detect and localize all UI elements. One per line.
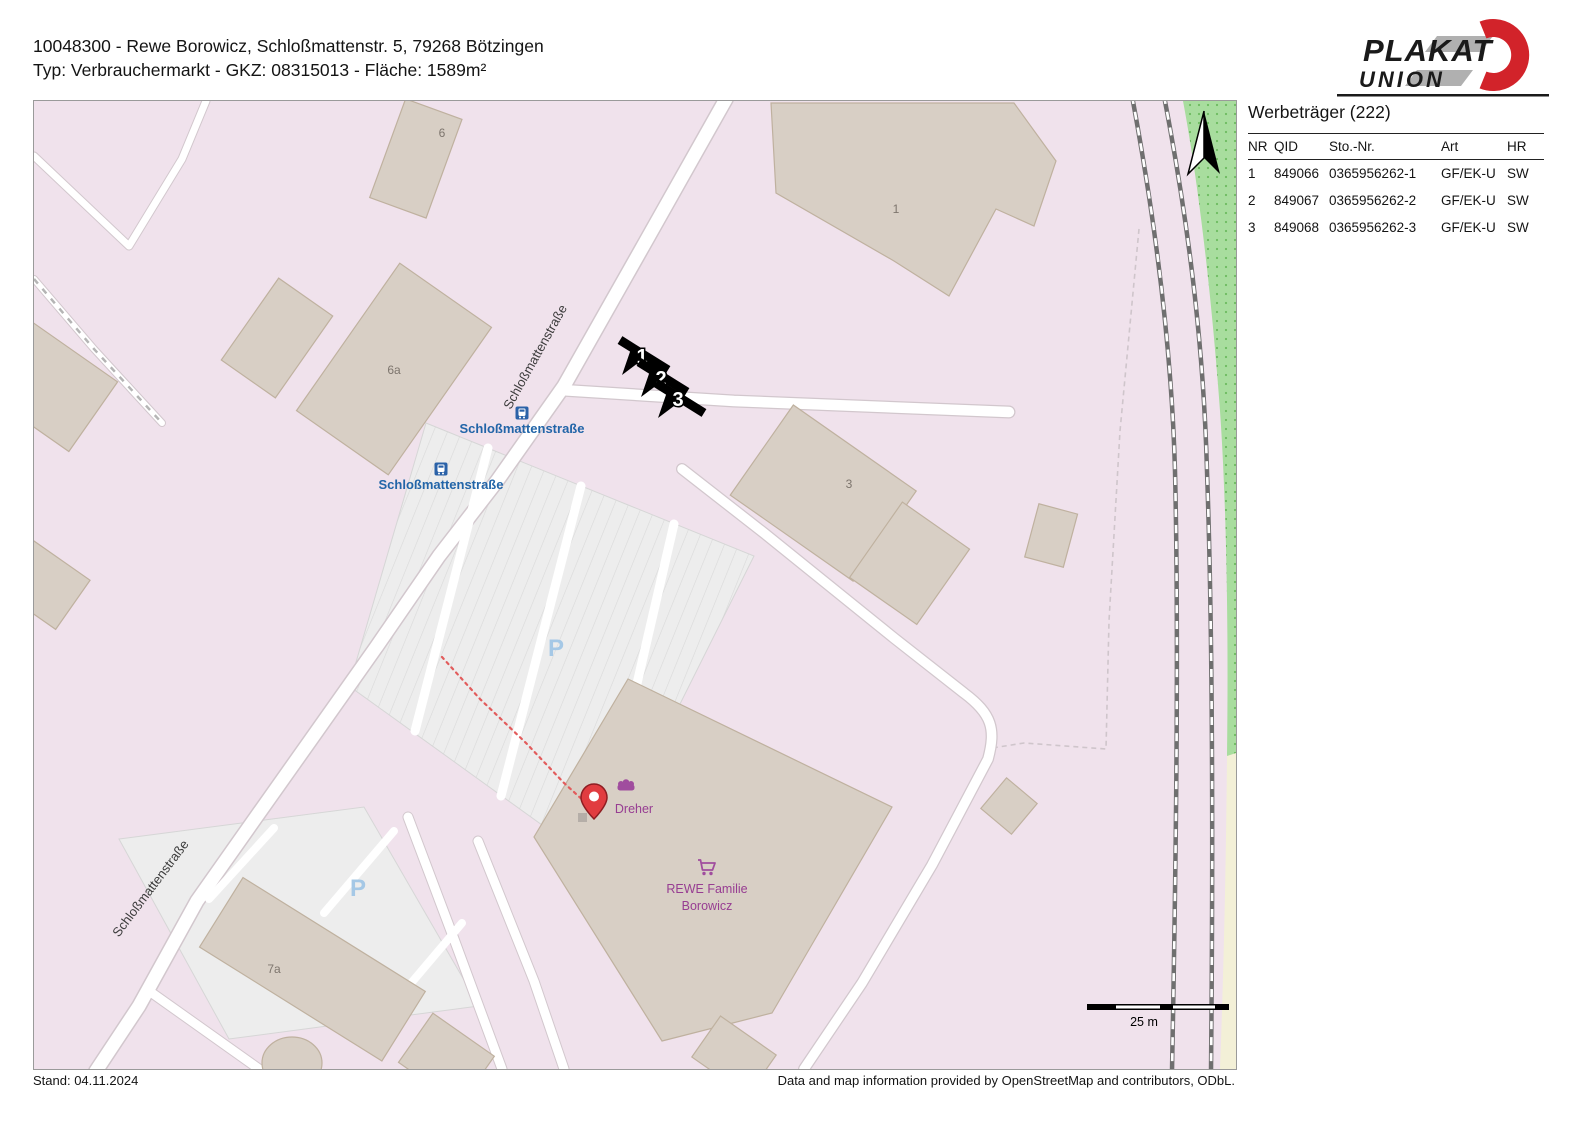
cell-art: GF/EK-U bbox=[1441, 220, 1507, 235]
cell-hr: SW bbox=[1507, 220, 1542, 235]
table-row: 2 849067 0365956262-2 GF/EK-U SW bbox=[1248, 187, 1544, 214]
werbetraeger-panel: Werbeträger (222) NR QID Sto.-Nr. Art HR… bbox=[1248, 102, 1544, 241]
parking-label-main: P bbox=[548, 635, 564, 662]
attribution-text: Data and map information provided by Ope… bbox=[778, 1073, 1235, 1088]
bus-window bbox=[520, 410, 525, 412]
table-row: 1 849066 0365956262-1 GF/EK-U SW bbox=[1248, 160, 1544, 187]
cell-art: GF/EK-U bbox=[1441, 193, 1507, 208]
cell-qid: 849068 bbox=[1274, 220, 1329, 235]
stand-date: Stand: 04.11.2024 bbox=[33, 1073, 138, 1088]
building-6-label: 6 bbox=[439, 126, 446, 140]
page: { "page": { "title_line1": "10048300 - R… bbox=[0, 0, 1587, 1123]
building-1-label: 1 bbox=[893, 202, 900, 216]
cell-hr: SW bbox=[1507, 193, 1542, 208]
cell-sto: 0365956262-1 bbox=[1329, 166, 1441, 181]
cell-nr: 1 bbox=[1248, 166, 1274, 181]
col-sto: Sto.-Nr. bbox=[1329, 139, 1441, 154]
col-art: Art bbox=[1441, 139, 1507, 154]
table-header: NR QID Sto.-Nr. Art HR bbox=[1248, 133, 1544, 160]
map-canvas: 6 1 6a 3 7a Schloßmattenstraße Schloßmat… bbox=[33, 100, 1237, 1070]
bus-stop-1 bbox=[516, 407, 529, 420]
bus-stop-2 bbox=[435, 463, 448, 476]
building-6a-label: 6a bbox=[387, 363, 401, 377]
supermarket-label-line2: Borowicz bbox=[682, 899, 733, 913]
supermarket-label-line1: REWE Familie bbox=[666, 882, 747, 896]
cell-hr: SW bbox=[1507, 166, 1542, 181]
logo-text-union: UNION bbox=[1359, 67, 1445, 92]
bus-window bbox=[439, 466, 444, 468]
bus-wheel-l bbox=[519, 417, 521, 419]
logo-text-plakat: PLAKAT bbox=[1363, 33, 1494, 68]
bakery-label: Dreher bbox=[615, 802, 653, 816]
scale-label: 25 m bbox=[1130, 1015, 1158, 1029]
building-7a-label: 7a bbox=[267, 962, 281, 976]
plakat-union-logo: PLAKAT UNION bbox=[1337, 14, 1549, 98]
bus-wheel-l bbox=[438, 473, 440, 475]
marker-number: 3 bbox=[672, 389, 683, 411]
col-hr: HR bbox=[1507, 139, 1542, 154]
report-subtitle: Typ: Verbrauchermarkt - GKZ: 08315013 - … bbox=[33, 60, 486, 81]
cell-sto: 0365956262-2 bbox=[1329, 193, 1441, 208]
bus-wheel-r bbox=[442, 473, 444, 475]
bus-stop-1-label: Schloßmattenstraße bbox=[460, 421, 585, 436]
map-svg: 6 1 6a 3 7a Schloßmattenstraße Schloßmat… bbox=[34, 101, 1236, 1069]
cell-art: GF/EK-U bbox=[1441, 166, 1507, 181]
table-row: 3 849068 0365956262-3 GF/EK-U SW bbox=[1248, 214, 1544, 241]
cell-qid: 849066 bbox=[1274, 166, 1329, 181]
building-3-label: 3 bbox=[846, 477, 853, 491]
parking-label-south: P bbox=[350, 875, 366, 902]
cell-nr: 3 bbox=[1248, 220, 1274, 235]
logo-underline bbox=[1337, 94, 1549, 97]
bus-wheel-r bbox=[523, 417, 525, 419]
cell-sto: 0365956262-3 bbox=[1329, 220, 1441, 235]
cell-nr: 2 bbox=[1248, 193, 1274, 208]
cell-qid: 849067 bbox=[1274, 193, 1329, 208]
footer: Stand: 04.11.2024 Data and map informati… bbox=[33, 1073, 1235, 1088]
report-title: 10048300 - Rewe Borowicz, Schloßmattenst… bbox=[33, 36, 544, 57]
col-nr: NR bbox=[1248, 139, 1274, 154]
building-shed bbox=[578, 813, 587, 822]
bus-stop-2-label: Schloßmattenstraße bbox=[379, 477, 504, 492]
col-qid: QID bbox=[1274, 139, 1329, 154]
panel-title: Werbeträger (222) bbox=[1248, 102, 1544, 123]
